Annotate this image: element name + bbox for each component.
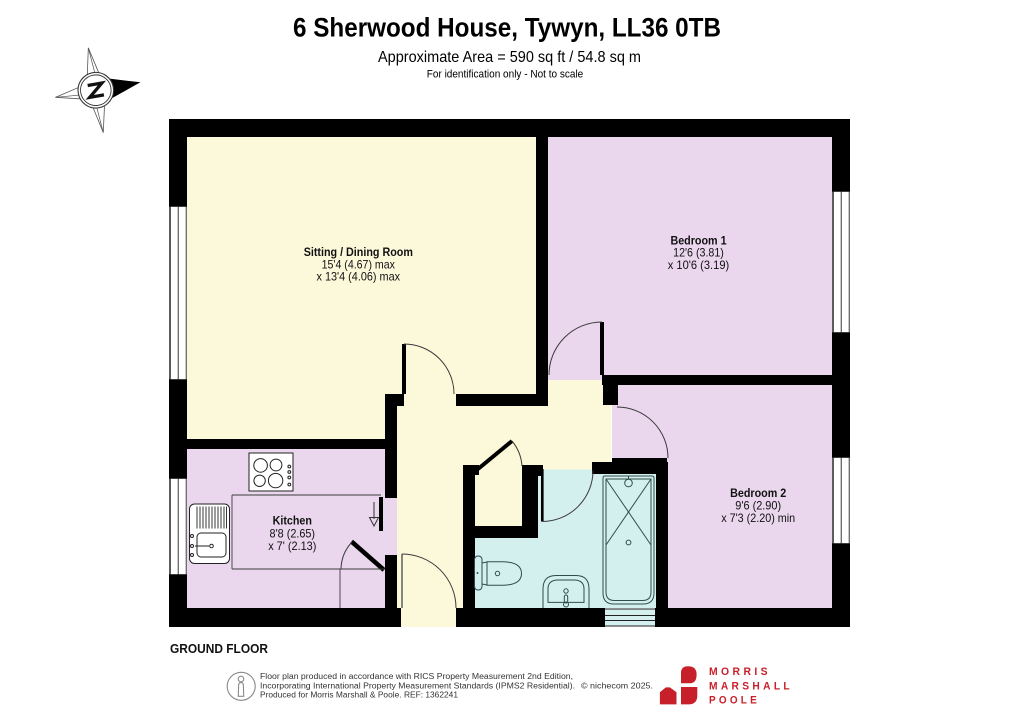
svg-text:MARSHALL: MARSHALL (709, 681, 793, 693)
svg-text:12'6 (3.81): 12'6 (3.81) (673, 247, 724, 260)
svg-text:Bedroom 2: Bedroom 2 (730, 487, 787, 500)
svg-text:© nichecom 2025.: © nichecom 2025. (581, 682, 653, 691)
svg-text:GROUND FLOOR: GROUND FLOOR (170, 642, 268, 656)
svg-text:Floor plan produced in accorda: Floor plan produced in accordance with R… (260, 672, 573, 681)
svg-text:x 13'4 (4.06) max: x 13'4 (4.06) max (317, 271, 401, 284)
svg-text:For identification only - Not: For identification only - Not to scale (427, 69, 584, 81)
svg-text:8'8 (2.65): 8'8 (2.65) (270, 527, 316, 540)
svg-text:POOLE: POOLE (709, 695, 760, 707)
svg-text:Approximate Area = 590 sq ft /: Approximate Area = 590 sq ft / 54.8 sq m (378, 49, 641, 66)
svg-text:Bedroom 1: Bedroom 1 (670, 234, 727, 247)
svg-text:15'4 (4.67) max: 15'4 (4.67) max (322, 259, 395, 272)
svg-text:x 7'3 (2.20) min: x 7'3 (2.20) min (721, 512, 795, 525)
svg-text:Kitchen: Kitchen (273, 515, 312, 528)
svg-text:9'6 (2.90): 9'6 (2.90) (735, 500, 781, 513)
svg-text:MORRIS: MORRIS (709, 666, 771, 678)
svg-text:6 Sherwood House, Tywyn, LL36: 6 Sherwood House, Tywyn, LL36 0TB (293, 13, 721, 43)
svg-text:Incorporating International Pr: Incorporating International Property Mea… (260, 682, 575, 691)
svg-text:x 10'6 (3.19): x 10'6 (3.19) (668, 259, 729, 272)
svg-text:Sitting / Dining Room: Sitting / Dining Room (304, 246, 413, 259)
svg-text:x 7' (2.13): x 7' (2.13) (268, 540, 316, 553)
svg-text:Produced for Morris Marshall &: Produced for Morris Marshall & Poole. RE… (260, 691, 459, 700)
